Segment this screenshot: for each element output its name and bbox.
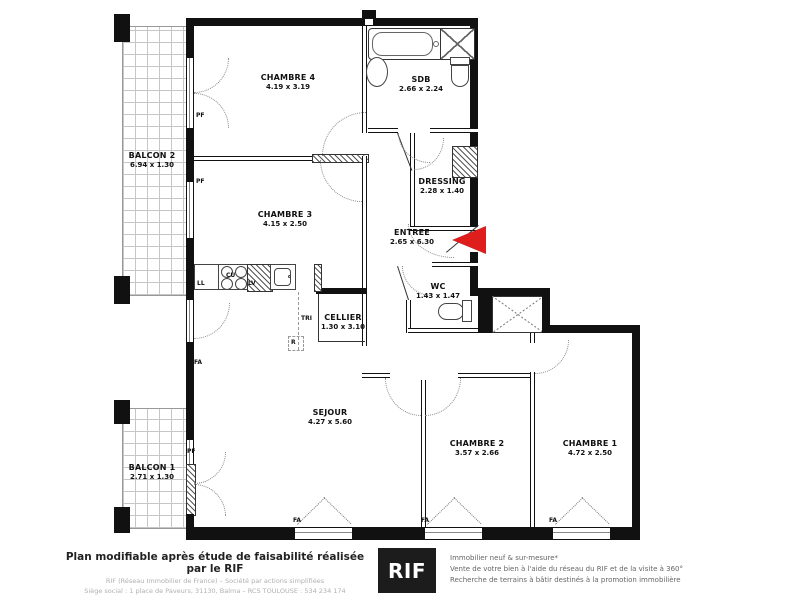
room-label-cellier: CELLIER 1.30 x 3.10 xyxy=(321,313,365,331)
window-swing-line xyxy=(581,497,609,524)
room-name: DRESSING xyxy=(418,177,465,186)
wall-segment xyxy=(186,238,194,300)
room-name: WC xyxy=(416,282,460,291)
sliding-door xyxy=(314,264,322,292)
wall-segment xyxy=(114,400,130,424)
tag-window-fa: FA xyxy=(194,359,202,366)
wall-segment xyxy=(530,372,535,527)
footer-title: Plan modifiable après étude de faisabili… xyxy=(55,551,375,575)
room-dims: 4.19 x 3.19 xyxy=(261,83,316,91)
room-dims: 6.94 x 1.30 xyxy=(129,161,176,169)
tag-tri: TRI xyxy=(301,315,312,322)
toilet-icon xyxy=(438,303,464,320)
room-dims: 2.28 x 1.40 xyxy=(418,187,465,195)
window xyxy=(425,527,482,540)
shower-icon xyxy=(440,28,475,60)
footer-company-line: RIF (Réseau Immobilier de France) – Soci… xyxy=(55,577,375,585)
room-label-sejour: SEJOUR 4.27 x 5.60 xyxy=(308,408,352,426)
room-name: ENTREE xyxy=(390,228,434,237)
wall-segment xyxy=(318,294,319,342)
window xyxy=(295,527,352,540)
room-name: SEJOUR xyxy=(308,408,352,417)
tag-r: R xyxy=(291,339,296,346)
door-swing-arc xyxy=(385,378,421,416)
wall-segment xyxy=(458,373,530,378)
room-name: BALCON 1 xyxy=(129,463,176,472)
window-swing-line xyxy=(427,498,455,525)
door-swing-arc xyxy=(425,378,461,416)
tag-window-pf: PF xyxy=(196,178,205,185)
wall-segment xyxy=(478,296,492,333)
door-swing-arc xyxy=(194,58,229,93)
door-swing-arc xyxy=(320,160,362,202)
window-swing-line xyxy=(323,497,351,524)
window xyxy=(553,527,610,540)
tag-window-pf: PF xyxy=(187,448,196,455)
room-label-entree: ENTREE 2.65 x 6.30 xyxy=(390,228,434,246)
window-swing-line xyxy=(297,498,325,525)
technical-duct xyxy=(452,146,478,178)
tag-window-fa: FA xyxy=(549,517,557,524)
wall-segment xyxy=(186,527,295,540)
toilet-tank-icon xyxy=(450,57,470,65)
wall-segment xyxy=(114,276,130,304)
door-swing-arc xyxy=(414,138,444,170)
footer-services-block: Immobilier neuf & sur-mesure* Vente de v… xyxy=(450,553,760,586)
bathtub-icon xyxy=(368,28,444,60)
room-label-balcon1: BALCON 1 2.71 x 1.30 xyxy=(129,463,176,481)
wall-segment xyxy=(186,342,194,440)
burner-icon xyxy=(221,278,233,290)
room-dims: 1.30 x 3.10 xyxy=(321,323,365,331)
door-swing-arc xyxy=(194,452,226,484)
room-label-balcon2: BALCON 2 6.94 x 1.30 xyxy=(129,151,176,169)
wall-segment xyxy=(352,527,425,540)
room-name: CELLIER xyxy=(321,313,365,322)
tag-washing-machine: LL xyxy=(197,280,205,287)
tag-window-pf: PF xyxy=(196,112,205,119)
footer-service-line: Recherche de terrains à bâtir destinés à… xyxy=(450,575,760,586)
rif-logo: RIF xyxy=(378,548,436,593)
door-swing-arc xyxy=(194,93,229,128)
window-swing-line xyxy=(555,498,583,525)
room-name: BALCON 2 xyxy=(129,151,176,160)
tag-kitchen: CU xyxy=(226,272,235,279)
window-swing-line xyxy=(453,497,481,524)
footer-address-line: Siège social : 1 place de Paveurs, 31130… xyxy=(55,587,375,595)
wall-segment xyxy=(610,527,640,540)
door-swing-arc xyxy=(194,484,226,516)
room-dims: 3.57 x 2.66 xyxy=(450,449,505,457)
wall-segment xyxy=(114,14,130,42)
door-swing-arc xyxy=(535,340,569,374)
room-label-chambre1: CHAMBRE 1 4.72 x 2.50 xyxy=(563,439,618,457)
room-dims: 4.72 x 2.50 xyxy=(563,449,618,457)
room-dims: 2.66 x 2.24 xyxy=(399,85,443,93)
wall-segment xyxy=(368,128,398,133)
room-label-sdb: SDB 2.66 x 2.24 xyxy=(399,75,443,93)
wall-joint xyxy=(365,19,373,25)
footer-service-line: Immobilier neuf & sur-mesure* xyxy=(450,553,760,564)
floor-plan-page: CHAMBRE 4 4.19 x 3.19 SDB 2.66 x 2.24 CH… xyxy=(0,0,800,600)
toilet-icon xyxy=(451,65,469,87)
toilet-tank-icon xyxy=(462,300,472,322)
wall-segment xyxy=(186,128,194,182)
room-name: CHAMBRE 1 xyxy=(563,439,618,448)
wall-segment xyxy=(470,288,550,296)
wall-segment xyxy=(186,18,478,26)
room-dims: 2.65 x 6.30 xyxy=(390,238,434,246)
room-label-chambre4: CHAMBRE 4 4.19 x 3.19 xyxy=(261,73,316,91)
tag-window-fa: FA xyxy=(293,517,301,524)
tag-window-fa: FA xyxy=(421,517,429,524)
technical-shaft xyxy=(492,296,544,333)
wall-segment xyxy=(408,328,478,333)
entrance-arrow xyxy=(452,226,486,254)
tag-dishwasher: LV xyxy=(248,280,256,287)
room-name: CHAMBRE 3 xyxy=(258,210,313,219)
wall-segment xyxy=(318,341,365,342)
room-name: CHAMBRE 4 xyxy=(261,73,316,82)
room-dims: 2.71 x 1.30 xyxy=(129,473,176,481)
wall-segment xyxy=(316,288,366,294)
room-name: CHAMBRE 2 xyxy=(450,439,505,448)
wall-segment xyxy=(114,507,130,533)
room-label-chambre2: CHAMBRE 2 3.57 x 2.66 xyxy=(450,439,505,457)
footer-service-line: Vente de votre bien à l'aide du réseau d… xyxy=(450,564,760,575)
wall-segment xyxy=(362,10,376,18)
rif-logo-text: RIF xyxy=(388,559,426,583)
wall-segment xyxy=(632,325,640,540)
wall-segment xyxy=(542,325,640,333)
door-swing-arc xyxy=(194,303,230,339)
door-swing-arc xyxy=(322,112,366,156)
wall-segment xyxy=(432,262,478,267)
wall-segment xyxy=(482,527,553,540)
faucet-icon xyxy=(288,275,291,278)
wall-segment xyxy=(186,18,194,58)
burner-icon xyxy=(235,278,247,290)
room-label-chambre3: CHAMBRE 3 4.15 x 2.50 xyxy=(258,210,313,228)
room-name: SDB xyxy=(399,75,443,84)
footer-legal-block: Plan modifiable après étude de faisabili… xyxy=(55,551,375,595)
room-dims: 1.43 x 1.47 xyxy=(416,292,460,300)
room-dims: 4.15 x 2.50 xyxy=(258,220,313,228)
room-dims: 4.27 x 5.60 xyxy=(308,418,352,426)
window xyxy=(186,58,194,128)
burner-icon xyxy=(235,266,247,278)
room-label-dressing: DRESSING 2.28 x 1.40 xyxy=(418,177,465,195)
window xyxy=(186,300,194,342)
wall-segment xyxy=(430,128,478,133)
window xyxy=(186,182,194,238)
room-label-wc: WC 1.43 x 1.47 xyxy=(416,282,460,300)
washbasin-icon xyxy=(366,57,388,87)
